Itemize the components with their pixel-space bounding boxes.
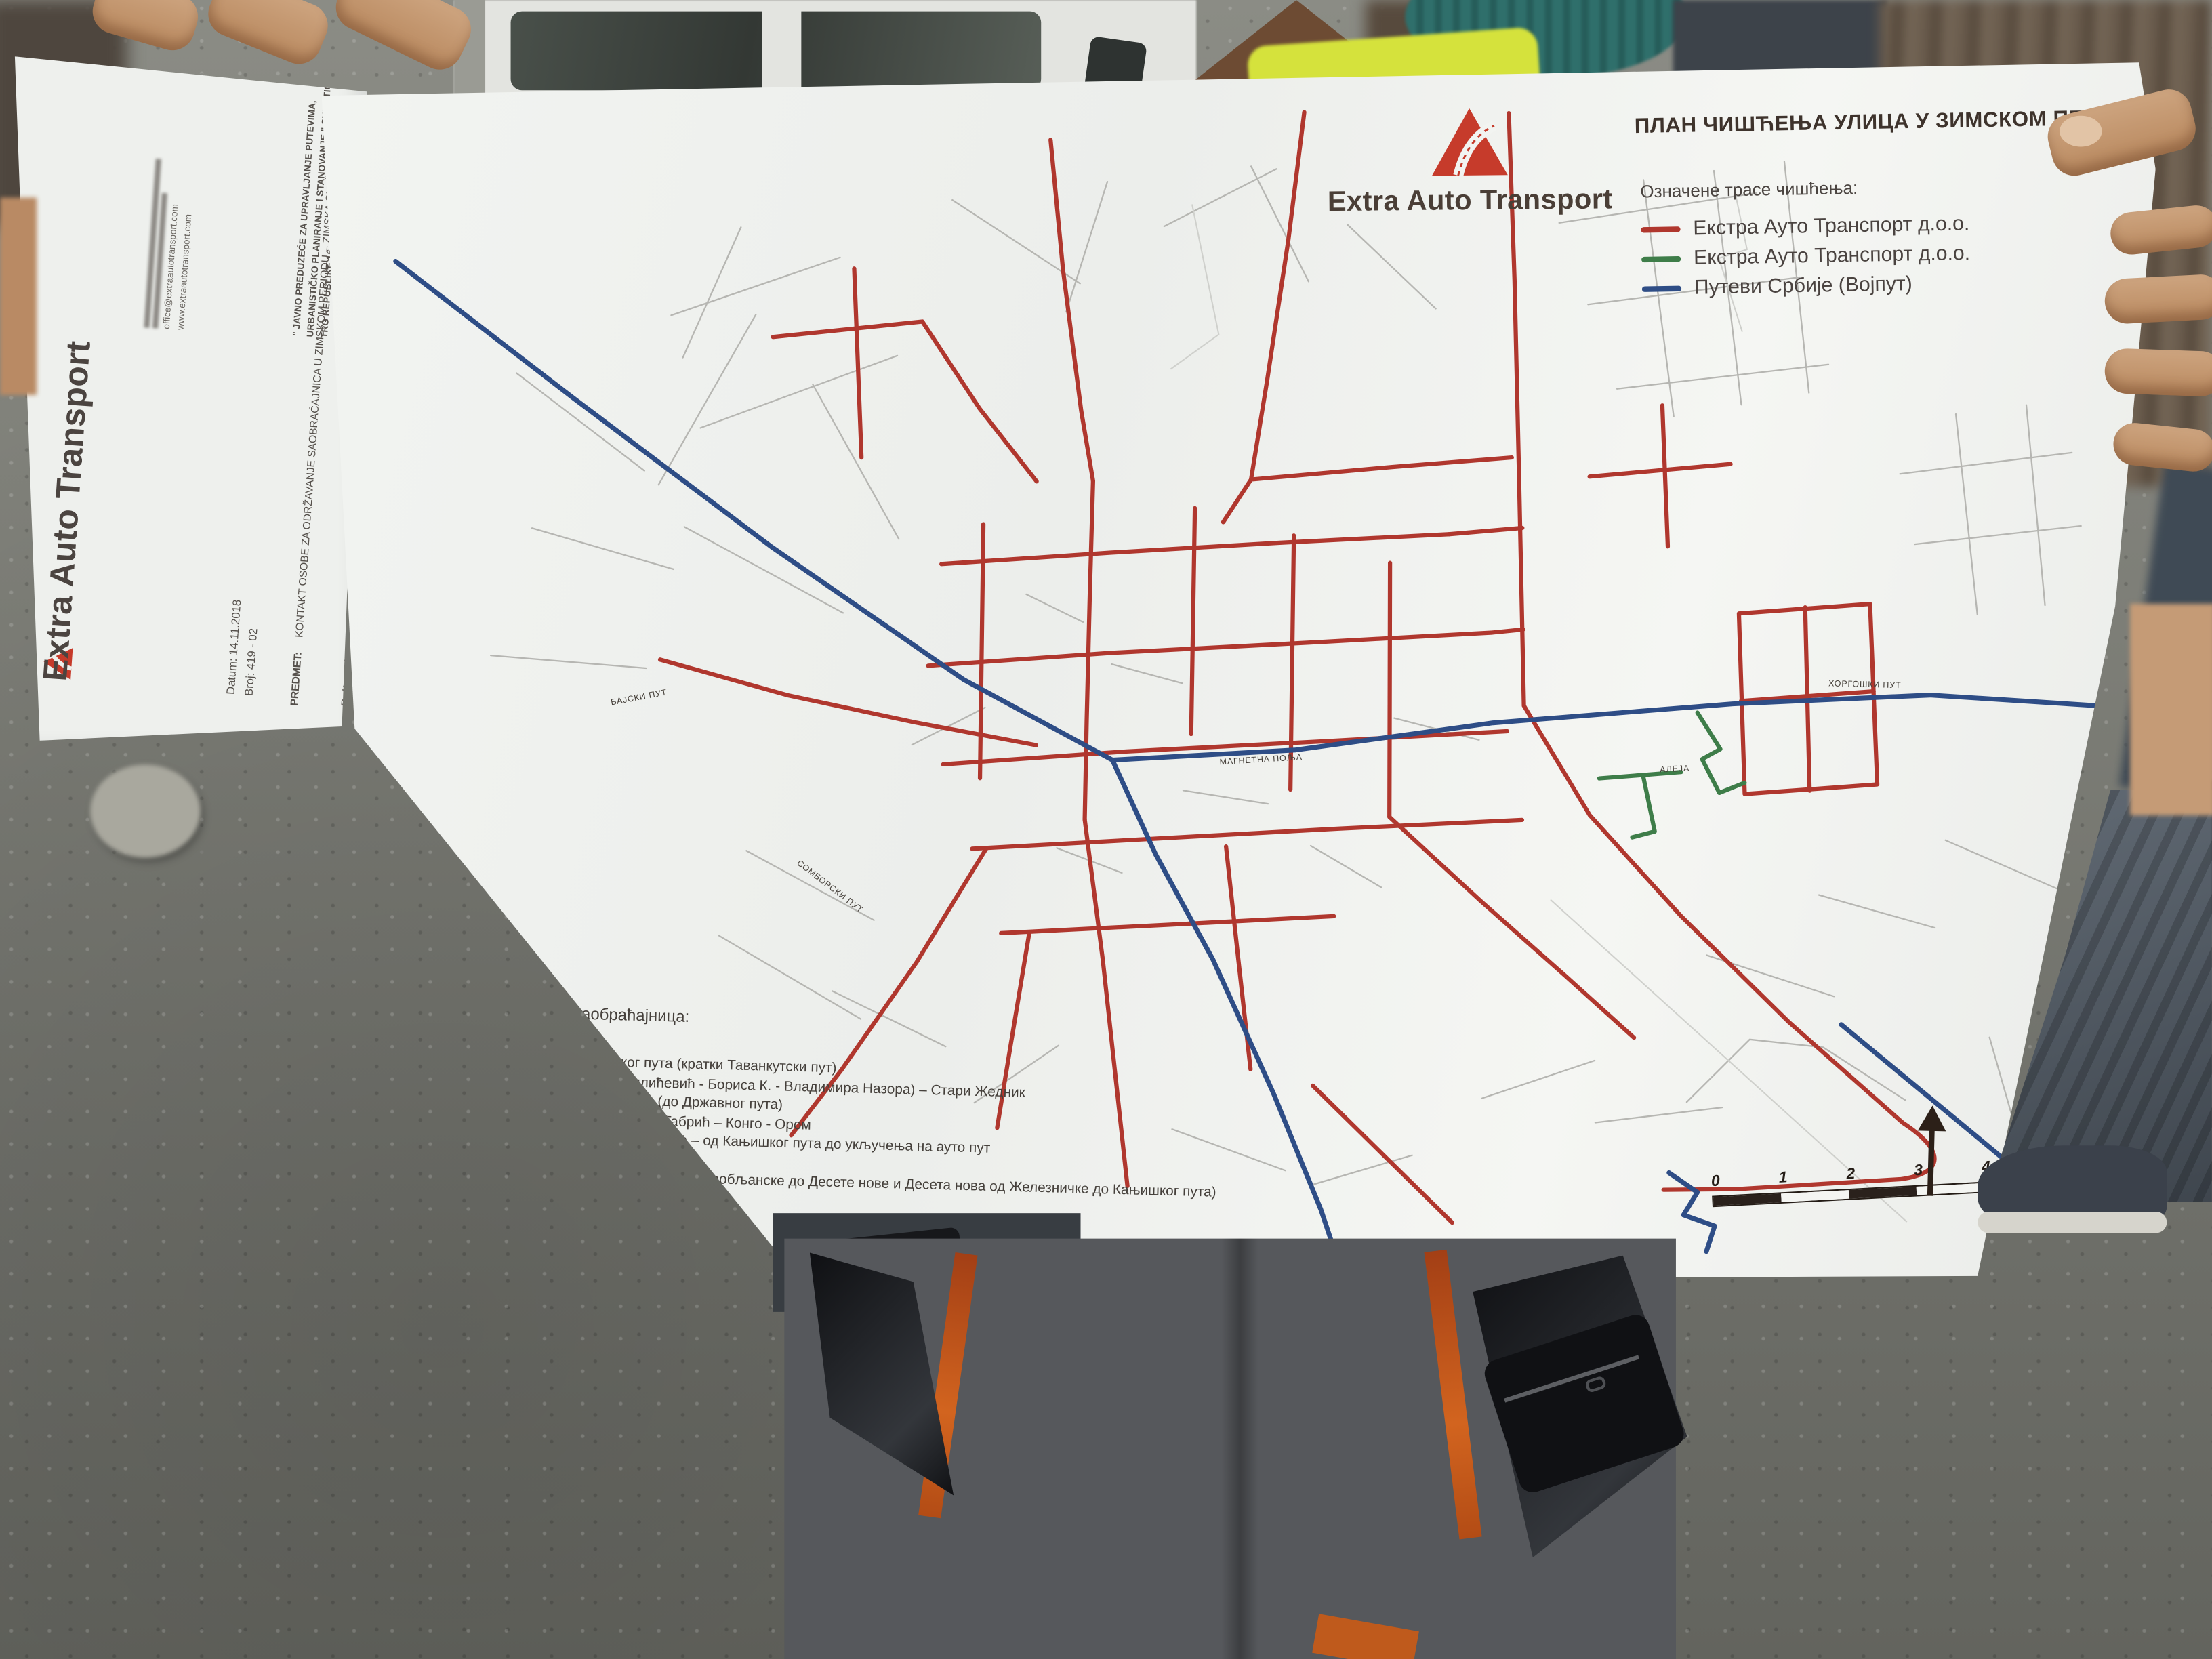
letter-date-block: Datum: 14.11.2018 Broj: 419 - 02 (223, 599, 266, 697)
scene: Extra Auto Transport office@extraautotra… (0, 0, 2212, 1659)
minor-road (813, 384, 899, 539)
scale-segment (1781, 1190, 1849, 1202)
red-road (1082, 481, 1096, 820)
red-road (1050, 140, 1093, 481)
minor-road (1595, 1107, 1723, 1122)
minor-road (700, 356, 898, 428)
scale-segment (1849, 1187, 1917, 1199)
minor-road (1914, 526, 2081, 544)
creases-road (1170, 205, 1219, 369)
minor-road (1183, 790, 1268, 804)
minor-road (719, 935, 861, 1021)
minor-road (491, 654, 646, 670)
red-road (1189, 508, 1197, 734)
red-road (1387, 563, 1392, 817)
minor-road (516, 372, 644, 472)
logo-text: Extra Auto Transport (1294, 184, 1647, 220)
map-logo: Extra Auto Transport (1293, 104, 1647, 220)
minor-road (1164, 169, 1277, 226)
legend-label: Путеви Србије (Војпут) (1694, 273, 1912, 300)
minor-road (1482, 1061, 1595, 1099)
minor-road (532, 527, 674, 570)
letter-page: Extra Auto Transport office@extraautotra… (12, 42, 367, 747)
minor-road (1111, 663, 1182, 684)
minor-road (657, 314, 758, 485)
map-legend: Означене трасе чишћења: Екстра Ауто Тран… (1640, 173, 2136, 308)
green-road (1632, 775, 1655, 838)
legend-color-dash (1641, 227, 1680, 232)
scale-tick: 2 (1846, 1166, 1856, 1183)
legend-items: Екстра Ауто Транспорт д.о.о.Екстра Ауто … (1641, 210, 2136, 300)
minor-road (912, 708, 985, 745)
red-road (1589, 464, 1730, 476)
red-road (1001, 916, 1334, 933)
subject-label: PREDMET: (288, 651, 304, 706)
legend-label: Екстра Ауто Транспорт д.о.о. (1694, 243, 1971, 270)
minor-road (671, 258, 841, 315)
street-label: АЛЕЈА (1660, 765, 1689, 775)
legend-item: Екстра Ауто Транспорт д.о.о. (1641, 210, 2135, 241)
pavement-stone (90, 764, 200, 857)
minor-road (1617, 365, 1829, 389)
scale-tick: 1 (1778, 1170, 1788, 1187)
legend-item: Екстра Ауто Транспорт д.о.о. (1641, 240, 2135, 271)
blue-road (1112, 693, 2145, 760)
letter-contact-block: office@extraautotransport.com www.extraa… (141, 88, 205, 331)
green-roads (1599, 712, 1745, 838)
minor-road (2026, 405, 2045, 605)
minor-road (1026, 594, 1083, 622)
legend-color-dash (1642, 286, 1681, 291)
blue-road (396, 255, 1113, 766)
red-road (854, 268, 861, 457)
minor-road (1311, 845, 1382, 888)
green-road (1698, 712, 1745, 793)
red-road (1449, 528, 1522, 534)
logo-triangle-icon (1426, 105, 1514, 179)
legend-label: Екстра Ауто Транспорт д.о.о. (1693, 213, 1970, 240)
red-road (1662, 405, 1668, 546)
right-finger (2104, 348, 2212, 397)
red-road (972, 820, 1522, 848)
zipper-pull (1584, 1375, 1607, 1393)
right-finger (2104, 273, 2212, 325)
red-road (1313, 1084, 1452, 1224)
minor-road (1065, 182, 1109, 312)
minor-road (1956, 414, 1978, 615)
scale-segment (1713, 1193, 1781, 1206)
left-hand-edge (0, 197, 37, 394)
letter-subject: PREDMET: KONTAKT OSOBE ZA ODRŽAVANJE SAO… (288, 283, 330, 706)
red-road (773, 321, 922, 337)
letter-brand: Extra Auto Transport (39, 643, 76, 682)
right-palm (2130, 604, 2212, 815)
red-road (1524, 702, 1935, 1191)
red-road (1251, 457, 1512, 480)
minor-road (1347, 224, 1435, 310)
letter-brand-text: Extra Auto Transport (37, 340, 100, 682)
north-arrow-icon (1916, 1105, 1946, 1199)
legend-item: Путеви Србије (Војпут) (1642, 269, 2136, 300)
minor-road (682, 227, 742, 357)
van-pillar (762, 8, 801, 93)
red-road (1492, 630, 1523, 633)
bystander-shoe (1978, 1145, 2167, 1233)
red-road (922, 321, 1037, 483)
minor-road (1900, 453, 2072, 474)
legend-color-dash (1641, 256, 1681, 262)
zipper-line (1504, 1355, 1639, 1401)
photo-viewport: Extra Auto Transport office@extraautotra… (0, 0, 2212, 1659)
thumb-nail (2060, 116, 2102, 147)
red-road (928, 632, 1492, 665)
scale-tick: 0 (1711, 1173, 1720, 1191)
red-road (1389, 815, 1634, 1040)
minor-road (1819, 894, 1935, 928)
